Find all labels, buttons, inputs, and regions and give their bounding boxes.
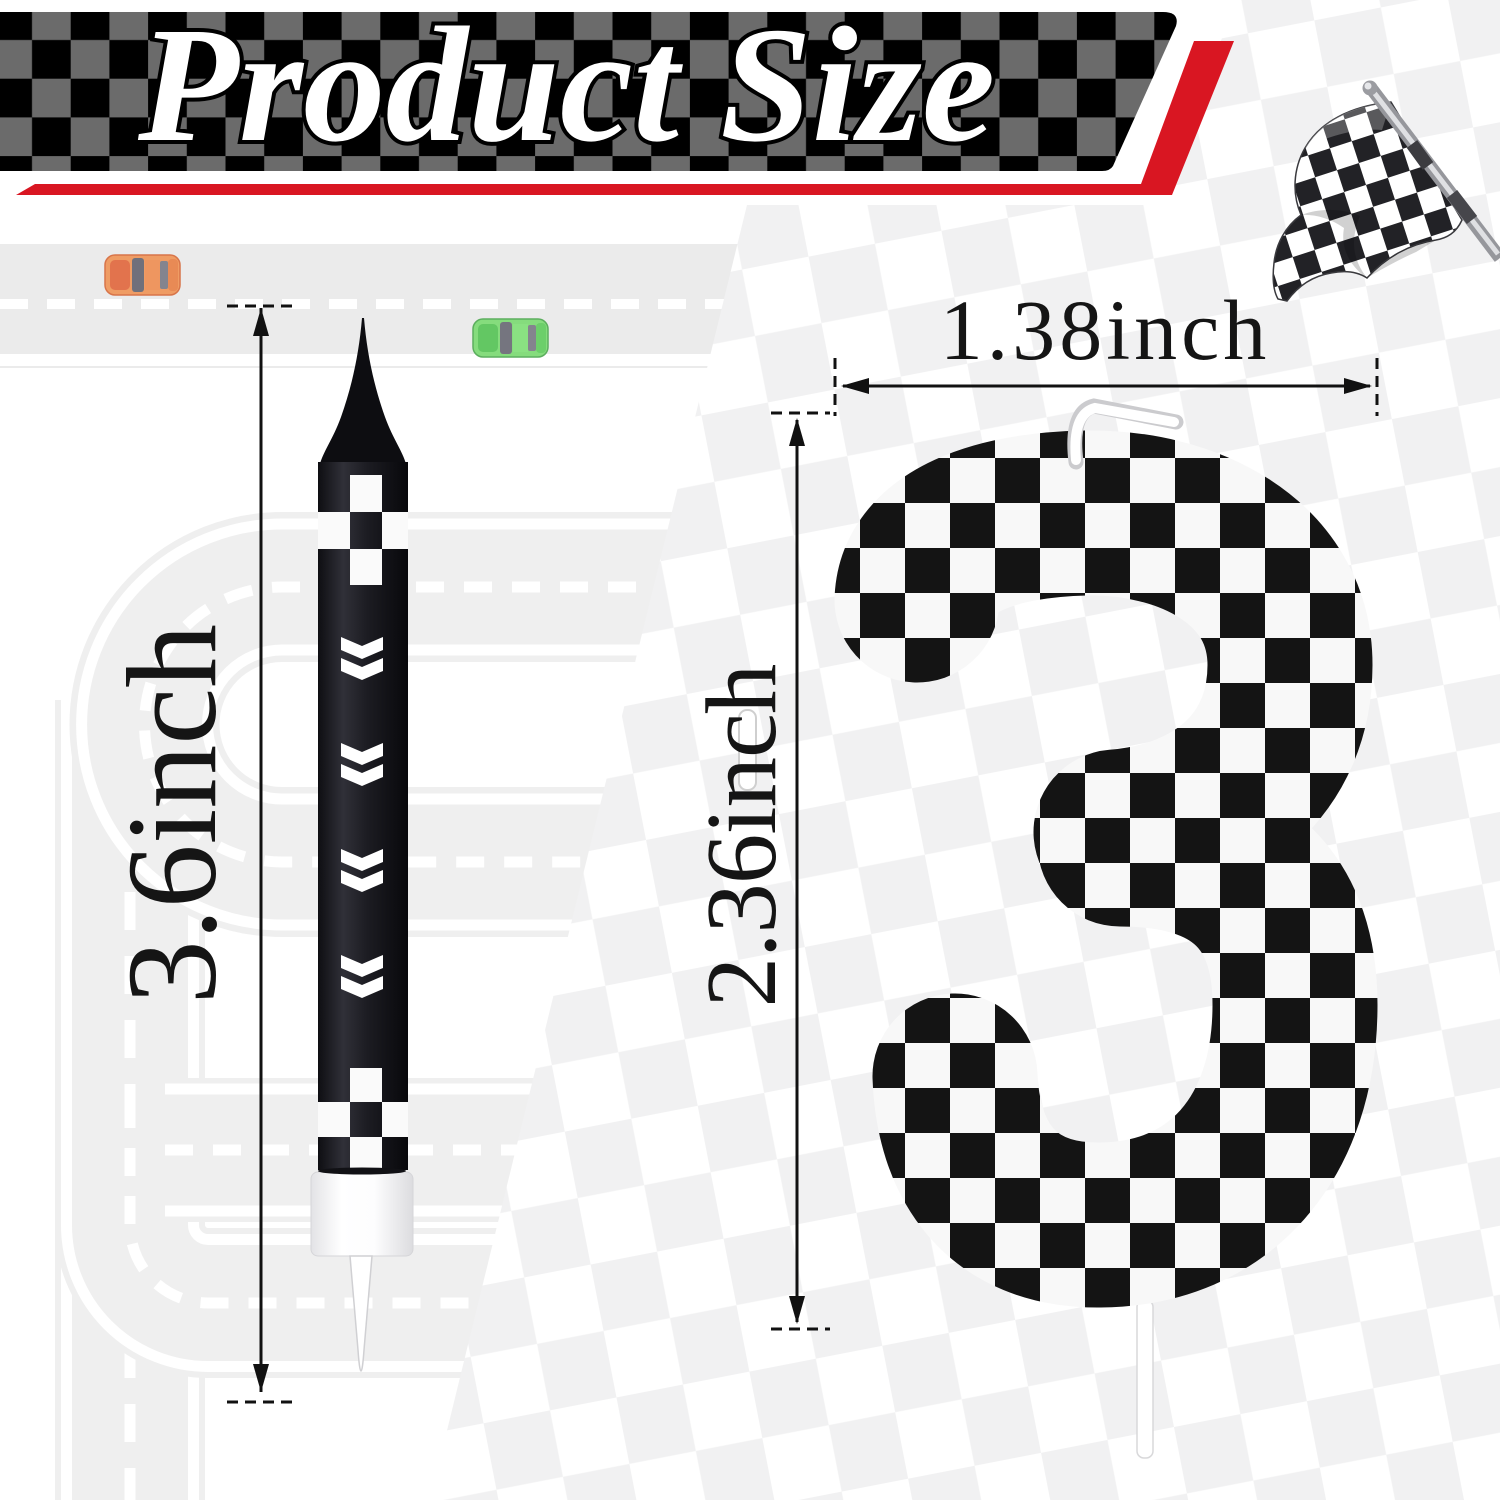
svg-text:2.36inch: 2.36inch	[685, 664, 797, 1007]
svg-text:Product Size: Product Size	[137, 0, 995, 176]
svg-text:1.38inch: 1.38inch	[940, 282, 1271, 378]
svg-text:3.6inch: 3.6inch	[101, 624, 243, 1004]
